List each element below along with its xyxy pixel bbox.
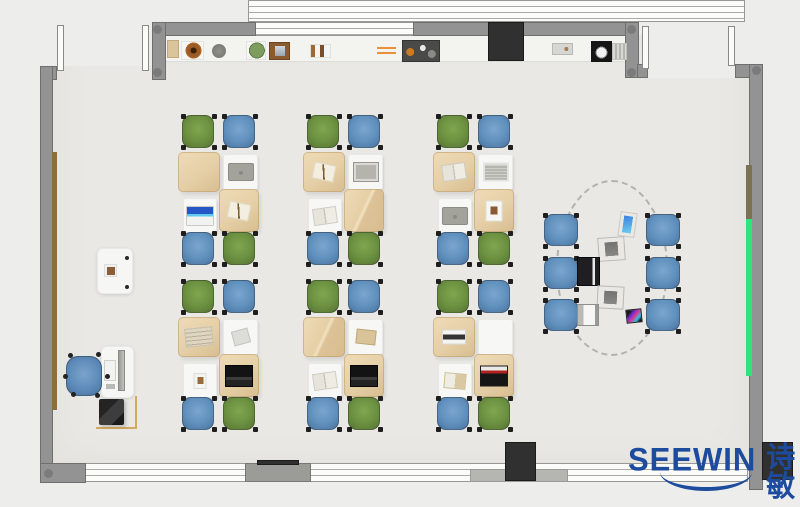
desk-item-notebook-stripe <box>483 163 509 182</box>
desk-item-photo-card <box>194 373 207 389</box>
outside-area-top-left <box>0 0 152 66</box>
chair-blue <box>348 115 380 148</box>
shelf-item-orange-sticks <box>377 47 396 54</box>
brand-wordmark: SEEWIN <box>628 443 756 476</box>
lintel-dark <box>257 460 299 465</box>
desk-item-book-tan <box>443 372 466 390</box>
student-desk <box>433 152 475 192</box>
shelf-item-photo-frame <box>269 42 290 60</box>
wall-top-left-segment <box>152 22 256 36</box>
wall-joint-dot <box>153 25 162 34</box>
student-desk <box>348 319 383 355</box>
student-desk <box>438 363 472 398</box>
chair-green <box>437 280 469 313</box>
chair-blue <box>478 115 510 148</box>
door-leaf <box>728 26 735 66</box>
student-desk <box>303 317 345 357</box>
wall-rail-right-olive <box>746 165 752 219</box>
brand-swoosh-icon <box>660 472 752 491</box>
student-desk <box>183 363 217 398</box>
student-desk <box>308 198 342 233</box>
desk-item-paper-pen <box>226 200 251 221</box>
teacher-chair <box>66 356 102 396</box>
student-desk <box>178 152 220 192</box>
brand-cjk: 诗敏 <box>766 444 800 502</box>
wall-joint-dot <box>153 68 162 77</box>
desk-item-laptop-red <box>480 365 508 386</box>
pod-chair-blue <box>544 299 578 331</box>
pod-chair-blue <box>544 257 578 289</box>
chair-green <box>478 232 510 265</box>
desk-item-notebook-tan <box>355 328 376 345</box>
chair-blue <box>182 232 214 265</box>
student-desk <box>178 317 220 357</box>
printer <box>99 399 124 425</box>
student-desk <box>478 319 513 355</box>
student-desk <box>344 354 384 397</box>
teacher-keyboard <box>104 360 116 381</box>
desk-item-paper-folded <box>230 328 250 347</box>
pod-phone <box>625 308 642 324</box>
chair-blue <box>223 280 255 313</box>
shelf-item-gray-box <box>552 43 573 55</box>
chair-blue <box>307 232 339 265</box>
pillar-bottom-gray <box>245 463 311 482</box>
chair-green <box>348 397 380 430</box>
student-desk <box>344 189 384 232</box>
chair-green <box>223 397 255 430</box>
pod-chair-blue <box>646 299 680 331</box>
desk-item-keyboard-white <box>442 330 466 345</box>
student-desk <box>223 154 258 190</box>
pod-device <box>596 285 624 309</box>
wall-rail-left <box>52 152 57 410</box>
student-desk <box>474 354 514 397</box>
shelf-item-appliance <box>591 41 612 62</box>
chair-green <box>182 280 214 313</box>
student-desk <box>433 317 475 357</box>
pod-chair-blue <box>544 214 578 246</box>
student-desk <box>478 154 513 190</box>
floorplan-render: SEEWIN 诗敏 <box>0 0 800 507</box>
chair-blue <box>437 232 469 265</box>
shelf-item-toolbox <box>402 40 440 62</box>
student-desk <box>223 319 258 355</box>
student-desk <box>308 363 342 398</box>
chair-green <box>307 115 339 148</box>
student-desk <box>474 189 514 232</box>
student-desk <box>438 198 472 233</box>
desk-item-laptop-dark <box>225 365 253 387</box>
teacher-monitor <box>118 350 125 391</box>
room <box>0 0 800 507</box>
wall-joint-dot <box>752 66 761 75</box>
window-band-top-inner <box>248 22 414 36</box>
table-dot <box>125 256 129 260</box>
desk-item-book-open <box>312 370 338 390</box>
pod-device <box>597 236 626 262</box>
teacher-desk-item <box>106 384 115 389</box>
chair-blue <box>307 397 339 430</box>
student-desk <box>348 154 383 190</box>
student-desk <box>183 198 217 233</box>
pod-laptop <box>577 257 600 286</box>
chair-green <box>223 232 255 265</box>
desk-item-tablet-gray <box>354 163 378 181</box>
desk-item-laptop-dark <box>350 365 378 387</box>
desk-item-magazine <box>184 326 214 348</box>
student-desk <box>219 189 259 232</box>
pod-laptop <box>577 304 599 326</box>
shelf-item-box <box>167 40 179 58</box>
wall-strip-green <box>746 219 752 376</box>
shelf-item-striped-box <box>612 43 627 60</box>
shelf-item-plant <box>246 41 266 60</box>
shelf-item-books <box>310 44 331 58</box>
door-leaf <box>57 25 64 71</box>
chair-green <box>348 232 380 265</box>
desk-item-laptop-blue <box>186 206 214 226</box>
pod-chair-blue <box>646 214 680 246</box>
brand-logo: SEEWIN 诗敏 <box>628 444 800 502</box>
window-band-top <box>248 0 745 22</box>
wall-joint-dot <box>627 25 636 34</box>
door-leaf <box>142 25 149 71</box>
table-dot <box>125 285 129 289</box>
cabinet-black <box>488 22 524 61</box>
chair-blue <box>478 280 510 313</box>
wall-joint-dot <box>44 469 53 478</box>
chair-green <box>437 115 469 148</box>
chair-green <box>182 115 214 148</box>
shelf-item-bowl <box>181 41 204 60</box>
chair-blue <box>223 115 255 148</box>
chair-green <box>307 280 339 313</box>
desk-item-book-open <box>312 205 338 225</box>
desk-item-paper-photo <box>486 200 503 221</box>
shelf-item-pot <box>212 44 226 58</box>
chair-green <box>478 397 510 430</box>
desk-item-laptop-gray <box>442 207 468 225</box>
desk-item-laptop-gray <box>228 163 254 181</box>
student-desk <box>303 152 345 192</box>
chair-blue <box>348 280 380 313</box>
pod-tablet <box>617 211 637 238</box>
door-leaf <box>642 26 649 69</box>
wall-joint-dot <box>627 68 636 77</box>
desk-item-book-open <box>441 162 467 182</box>
pod-chair-blue <box>646 257 680 289</box>
student-desk <box>219 354 259 397</box>
pillar-dark-center <box>505 442 536 481</box>
desk-item-paper-pen <box>311 161 336 182</box>
chair-blue <box>182 397 214 430</box>
side-table-item <box>104 264 117 277</box>
chair-blue <box>437 397 469 430</box>
